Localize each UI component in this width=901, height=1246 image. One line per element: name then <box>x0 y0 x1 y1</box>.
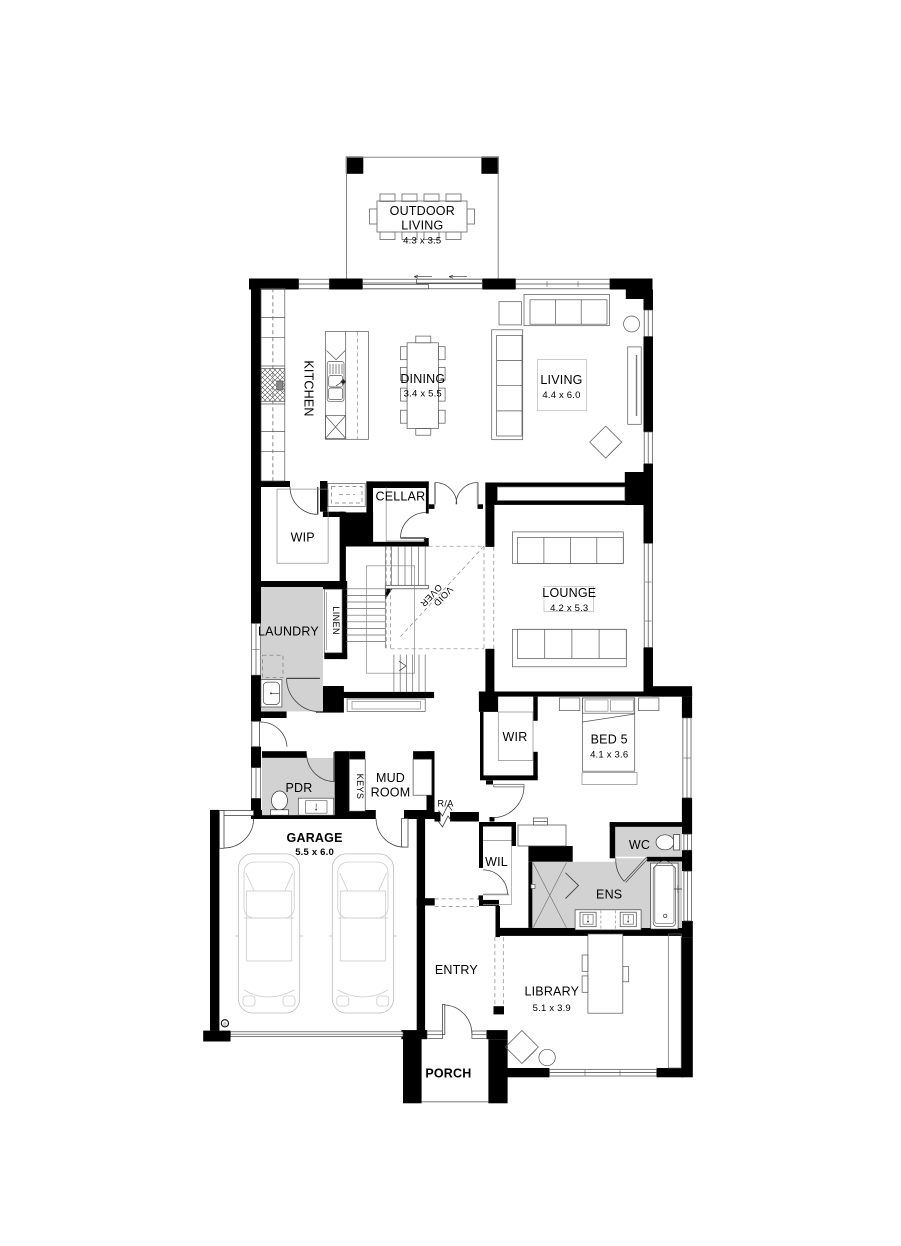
svg-text:WIL: WIL <box>485 855 508 869</box>
svg-text:3.4 x 5.5: 3.4 x 5.5 <box>404 389 442 400</box>
svg-text:4.3 x 3.5: 4.3 x 3.5 <box>403 236 441 247</box>
svg-text:WC: WC <box>629 838 650 852</box>
svg-text:ENS: ENS <box>596 888 622 902</box>
svg-text:ROOM: ROOM <box>371 786 411 800</box>
svg-text:LIVING: LIVING <box>401 219 443 233</box>
svg-text:R/A: R/A <box>438 799 454 809</box>
svg-text:LIBRARY: LIBRARY <box>524 985 579 999</box>
svg-text:DINING: DINING <box>400 372 445 386</box>
svg-text:PDR: PDR <box>286 781 313 795</box>
svg-text:CELLAR: CELLAR <box>375 490 425 504</box>
svg-text:GARAGE: GARAGE <box>287 831 343 845</box>
svg-text:WIR: WIR <box>503 730 528 744</box>
svg-text:KEYS: KEYS <box>355 774 365 800</box>
svg-text:OUTDOOR: OUTDOOR <box>390 204 455 218</box>
svg-text:c: c <box>223 1022 226 1028</box>
svg-text:LAUNDRY: LAUNDRY <box>258 625 319 639</box>
svg-text:MUD: MUD <box>376 771 405 785</box>
svg-text:ENTRY: ENTRY <box>435 963 479 977</box>
svg-text:4.2 x 5.3: 4.2 x 5.3 <box>550 603 588 614</box>
svg-text:WIP: WIP <box>291 531 315 545</box>
svg-text:5.5 x 6.0: 5.5 x 6.0 <box>295 847 334 858</box>
svg-text:4.4 x 6.0: 4.4 x 6.0 <box>542 390 580 401</box>
svg-text:KITCHEN: KITCHEN <box>302 360 316 416</box>
svg-text:LOUNGE: LOUNGE <box>542 586 596 600</box>
svg-text:5.1 x 3.9: 5.1 x 3.9 <box>533 1003 571 1014</box>
svg-text:4.1 x 3.6: 4.1 x 3.6 <box>590 750 628 761</box>
svg-text:LIVING: LIVING <box>540 373 582 387</box>
svg-text:PORCH: PORCH <box>425 1066 471 1080</box>
svg-text:BED 5: BED 5 <box>591 733 628 747</box>
svg-text:LINEN: LINEN <box>331 606 341 635</box>
